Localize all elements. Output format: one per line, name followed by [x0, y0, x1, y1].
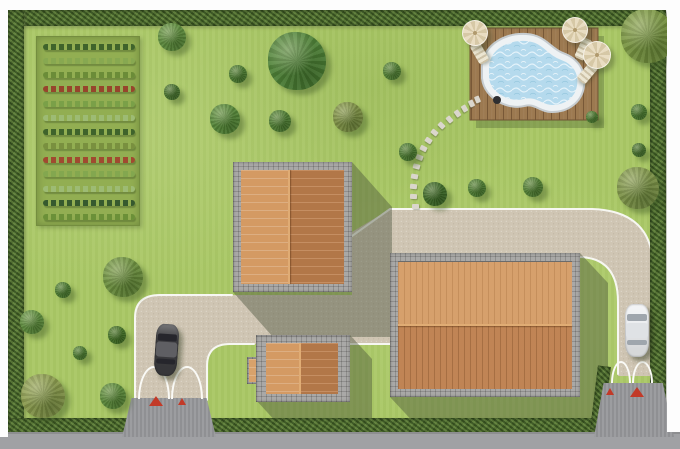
page-margin-left: [0, 0, 8, 437]
car-windshield: [627, 314, 647, 321]
page-margin-top: [0, 0, 680, 10]
car-roof: [156, 342, 177, 358]
car-windshield: [158, 333, 178, 341]
car-rear-window: [627, 340, 646, 345]
cars-layer: [0, 0, 680, 449]
dark-car: [153, 323, 180, 376]
white-car: [625, 304, 649, 357]
car-roof: [626, 323, 647, 338]
page-margin-right: [667, 0, 680, 432]
site-plan: [0, 0, 680, 449]
